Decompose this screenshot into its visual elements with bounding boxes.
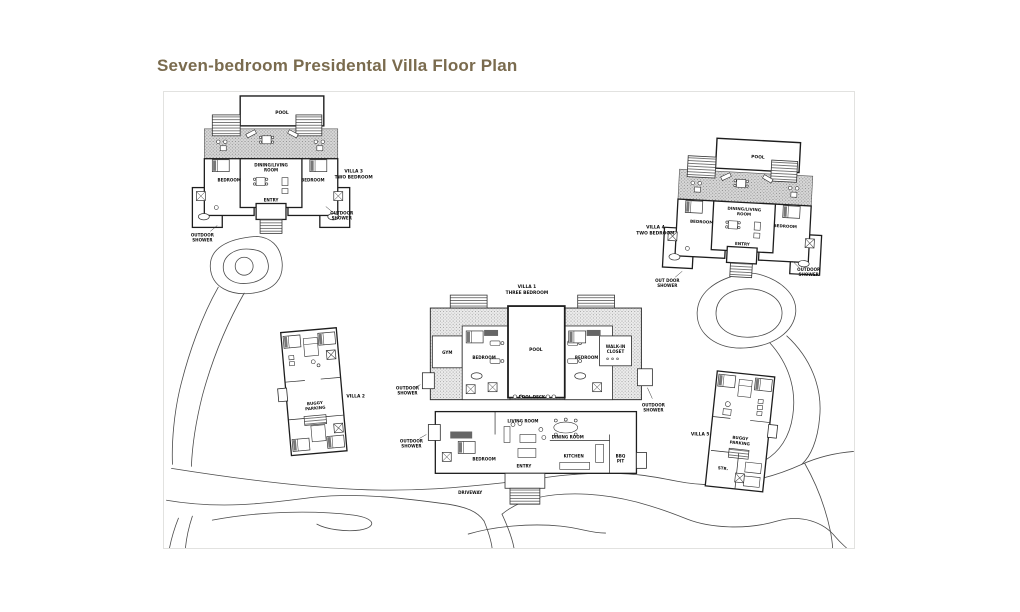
villa1-gym-label: GYM [442, 350, 452, 355]
floor-plan: POOL BEDROOM BEDROOM DINING/ [163, 91, 855, 549]
villa2-name-label: VILLA 2 [346, 394, 365, 400]
villa1-bbq-label-line2: PIT [617, 458, 625, 463]
villa5-name-label: VILLA 5 [691, 431, 710, 437]
villa1-outdoor-shower-upper-left-label-line2: SHOWER [397, 391, 418, 396]
villa1-bedroom-lower-label: BEDROOM [472, 456, 495, 461]
villa4-plan: VILLA 4 TWO BEDROOM OUT DOOR SHOWER OUTD… [636, 136, 826, 288]
villa3-outdoor-shower-left-label-line2: SHOWER [192, 237, 213, 242]
page-title: Seven-bedroom Presidental Villa Floor Pl… [157, 56, 517, 76]
villa4-outdoor-shower-right-label-line2: SHOWER [799, 272, 820, 277]
villa1-bedroom-left-label: BEDROOM [472, 355, 495, 360]
villa1-plan: VILLA 1 THREE BEDROOM POOL GYM BEDROOM B… [396, 284, 666, 504]
villa3-plan: VILLA 3 TWO BEDROOM OUTDOOR SHOWER OUTDO… [191, 96, 373, 242]
villa1-type-label: THREE BEDROOM [506, 290, 549, 296]
villa1-name-label: VILLA 1 [518, 284, 537, 290]
villa3-name-label: VILLA 3 [344, 169, 363, 175]
driveway-label: DRIVEWAY [458, 490, 482, 495]
villa1-bedroom-right-label: BEDROOM [575, 355, 598, 360]
villa1-kitchen-label: KITCHEN [564, 453, 585, 458]
villa2-plan: BUGGY PARKING VILLA 2 [273, 328, 365, 457]
villa1-outdoor-shower-right-label-line2: SHOWER [643, 408, 664, 413]
villa1-pool-deck-label: POOL DECK [519, 395, 546, 400]
villa1-outdoor-shower-lower-left-label-line2: SHOWER [401, 443, 422, 448]
villa3-outdoor-shower-right-label-line2: SHOWER [332, 215, 353, 220]
villa1-walkin-closet-label-line2: CLOSET [607, 349, 625, 354]
villa1-dining-room-label: DINING ROOM [552, 434, 584, 439]
floor-plan-canvas: POOL BEDROOM BEDROOM DINING/ [164, 92, 854, 548]
villa4-type-label: TWO BEDROOM [636, 230, 674, 236]
villa1-entry-label: ENTRY [517, 463, 532, 468]
villa5-plan: BUGGY PARKING STR. VILLA 5 [691, 371, 783, 493]
villa3-type-label: TWO BEDROOM [335, 175, 373, 181]
villa4-name-label: VILLA 4 [646, 224, 665, 230]
villa1-pool-label: POOL [529, 347, 543, 353]
villa4-outdoor-shower-left-label-line2: SHOWER [657, 283, 678, 288]
